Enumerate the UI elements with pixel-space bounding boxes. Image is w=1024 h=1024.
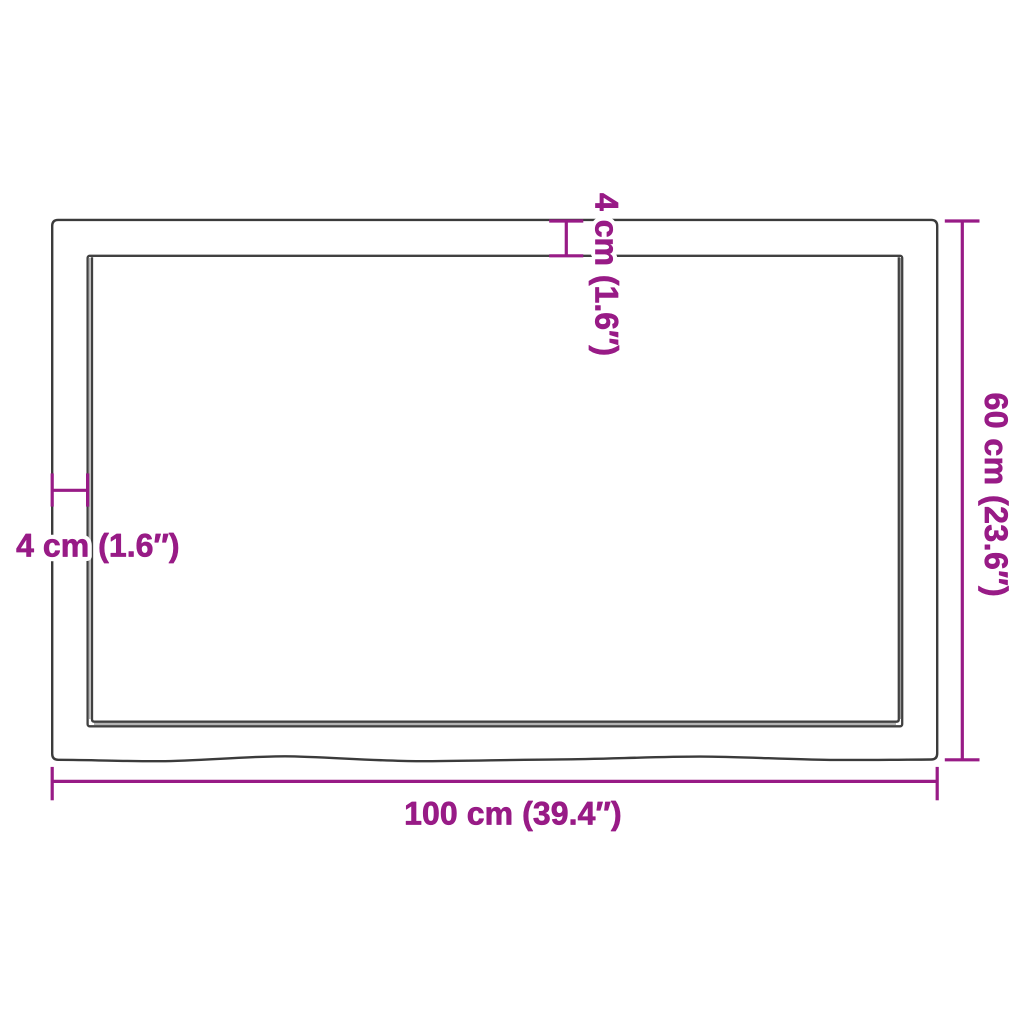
svg-text:100 cm (39.4″): 100 cm (39.4″)	[404, 796, 621, 832]
svg-text:60 cm (23.6″): 60 cm (23.6″)	[978, 393, 1014, 597]
svg-text:4 cm (1.6″): 4 cm (1.6″)	[589, 193, 625, 356]
svg-text:4 cm (1.6″): 4 cm (1.6″)	[16, 528, 179, 564]
